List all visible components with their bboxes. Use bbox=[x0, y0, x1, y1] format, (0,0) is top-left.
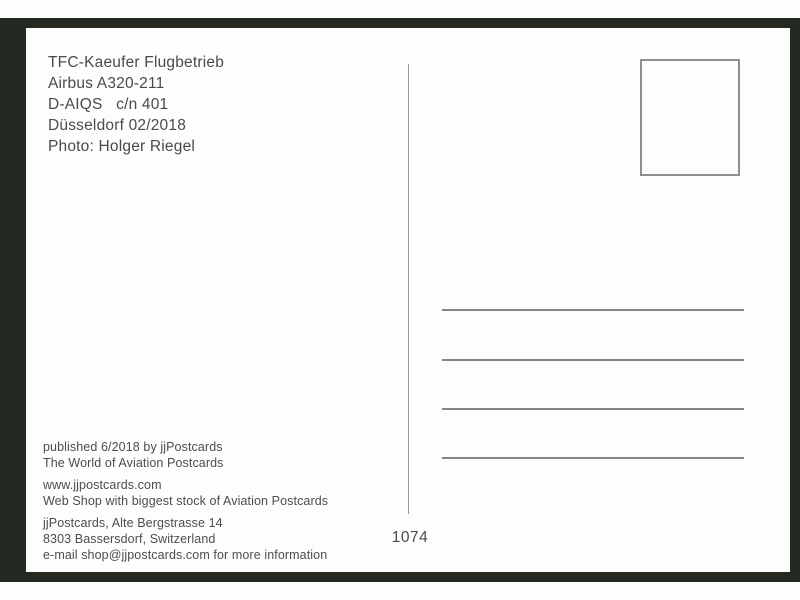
publisher-group-published: published 6/2018 by jjPostcards The Worl… bbox=[43, 439, 328, 471]
address-line bbox=[442, 359, 744, 361]
scanned-postcard-page: TFC-Kaeufer Flugbetrieb Airbus A320-211 … bbox=[0, 0, 800, 600]
publisher-group-address: jjPostcards, Alte Bergstrasse 14 8303 Ba… bbox=[43, 515, 328, 563]
sender-line-photographer: Photo: Holger Riegel bbox=[48, 136, 224, 157]
sender-line-location-date: Düsseldorf 02/2018 bbox=[48, 115, 224, 136]
publisher-webshop-line: Web Shop with biggest stock of Aviation … bbox=[43, 493, 328, 509]
sender-info-block: TFC-Kaeufer Flugbetrieb Airbus A320-211 … bbox=[48, 52, 224, 157]
postcard-back: TFC-Kaeufer Flugbetrieb Airbus A320-211 … bbox=[26, 28, 790, 572]
stamp-box bbox=[640, 59, 740, 176]
address-line bbox=[442, 408, 744, 410]
sender-line-operator: TFC-Kaeufer Flugbetrieb bbox=[48, 52, 224, 73]
publisher-email-line: e-mail shop@jjpostcards.com for more inf… bbox=[43, 547, 328, 563]
publisher-tagline: The World of Aviation Postcards bbox=[43, 455, 328, 471]
publisher-info-block: published 6/2018 by jjPostcards The Worl… bbox=[43, 439, 328, 569]
publisher-group-webshop: www.jjpostcards.com Web Shop with bigges… bbox=[43, 477, 328, 509]
address-line bbox=[442, 309, 744, 311]
sender-line-registration: D-AIQS c/n 401 bbox=[48, 94, 224, 115]
card-number: 1074 bbox=[360, 529, 460, 547]
publisher-address-street: jjPostcards, Alte Bergstrasse 14 bbox=[43, 515, 328, 531]
sender-line-aircraft-type: Airbus A320-211 bbox=[48, 73, 224, 94]
publisher-website: www.jjpostcards.com bbox=[43, 477, 328, 493]
divider-line bbox=[408, 64, 409, 514]
postcard-frame: TFC-Kaeufer Flugbetrieb Airbus A320-211 … bbox=[0, 18, 800, 582]
publisher-address-city: 8303 Bassersdorf, Switzerland bbox=[43, 531, 328, 547]
publisher-published-line: published 6/2018 by jjPostcards bbox=[43, 439, 328, 455]
address-line bbox=[442, 457, 744, 459]
